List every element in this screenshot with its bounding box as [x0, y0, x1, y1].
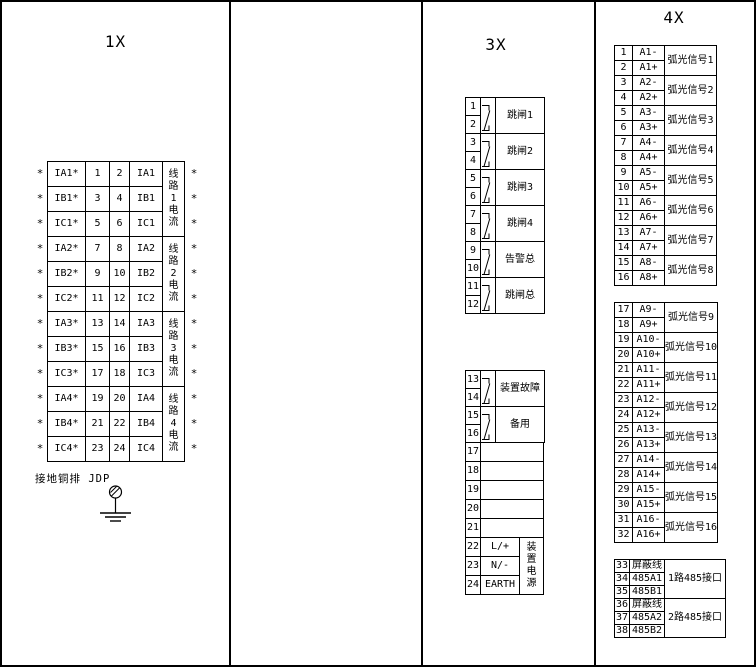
terminal-number: 19	[466, 481, 481, 500]
line-current-group-label: 线路2电流	[167, 244, 180, 304]
terminal-number: 24	[110, 437, 130, 462]
terminal-number: 23	[466, 557, 481, 576]
terminal-number: 9	[86, 262, 110, 287]
terminal-number: 3	[466, 134, 481, 152]
phase-label-left: IC1*	[48, 212, 86, 237]
wire-label: 485A1	[630, 573, 665, 586]
line-current-group-label: 线路4电流	[167, 394, 180, 454]
terminal-number: 12	[615, 211, 633, 226]
spare-cell	[481, 500, 544, 519]
earth-ground-icon	[94, 484, 138, 528]
terminal-number: 21	[86, 412, 110, 437]
power-wire-label: N/-	[481, 557, 520, 576]
wire-label: A5+	[633, 181, 665, 196]
terminal-number: 2	[466, 116, 481, 134]
terminal-number: 28	[615, 468, 633, 483]
panel-4x-title: 4X	[594, 8, 754, 27]
phase-label-left: IA1*	[48, 162, 86, 187]
polarity-star: *	[187, 286, 201, 311]
terminal-number: 20	[615, 348, 633, 363]
phase-label-right: IB2	[130, 262, 163, 287]
wire-label: A1-	[633, 46, 665, 61]
polarity-star: *	[187, 386, 201, 411]
power-wire-label: EARTH	[481, 576, 520, 595]
wire-label: A10+	[633, 348, 665, 363]
polarity-star: *	[33, 261, 47, 286]
terminal-number: 2	[615, 61, 633, 76]
terminal-number: 27	[615, 453, 633, 468]
relay-contact-icon	[482, 136, 495, 169]
wire-label: 屏蔽线	[630, 599, 665, 612]
polarity-star: *	[33, 436, 47, 461]
terminal-number: 11	[86, 287, 110, 312]
arc-signal-label: 弧光信号4	[665, 136, 717, 166]
line-current-group-cell: 线路2电流	[163, 237, 185, 312]
wire-label: A3+	[633, 121, 665, 136]
relay-contact-cell	[481, 242, 496, 278]
arc-signal-label: 弧光信号3	[665, 106, 717, 136]
terminal-number: 25	[615, 423, 633, 438]
phase-label-right: IB1	[130, 187, 163, 212]
wire-label: A13-	[633, 423, 665, 438]
terminal-number: 15	[466, 407, 481, 425]
phase-label-right: IB4	[130, 412, 163, 437]
terminal-number: 24	[466, 576, 481, 595]
polarity-star: *	[33, 186, 47, 211]
rs485-port-label: 2路485接口	[665, 599, 726, 638]
line-current-group-label: 线路3电流	[167, 319, 180, 379]
wire-label: A7+	[633, 241, 665, 256]
arc-signal-table-2: 17A9-弧光信号918A9+19A10-弧光信号1020A10+21A11-弧…	[614, 302, 718, 543]
terminal-number: 4	[615, 91, 633, 106]
terminal-number: 6	[466, 188, 481, 206]
wire-label: A10-	[633, 333, 665, 348]
terminal-number: 38	[615, 625, 630, 638]
terminal-number: 6	[110, 212, 130, 237]
terminal-number: 4	[110, 187, 130, 212]
column-divider	[421, 2, 423, 665]
terminal-number: 22	[466, 538, 481, 557]
terminal-number: 8	[615, 151, 633, 166]
relay-output-label: 跳闸4	[496, 206, 545, 242]
wire-label: 485A2	[630, 612, 665, 625]
terminal-number: 21	[466, 519, 481, 538]
arc-signal-label: 弧光信号8	[665, 256, 717, 286]
terminal-number: 20	[110, 387, 130, 412]
phase-label-left: IB1*	[48, 187, 86, 212]
phase-label-left: IC4*	[48, 437, 86, 462]
terminal-number: 13	[615, 226, 633, 241]
wire-label: A9-	[633, 303, 665, 318]
terminal-number: 18	[615, 318, 633, 333]
wire-label: A13+	[633, 438, 665, 453]
arc-signal-label: 弧光信号5	[665, 166, 717, 196]
wire-label: A1+	[633, 61, 665, 76]
terminal-number: 15	[86, 337, 110, 362]
terminal-number: 7	[466, 206, 481, 224]
polarity-star: *	[33, 311, 47, 336]
phase-label-left: IA4*	[48, 387, 86, 412]
phase-label-left: IB3*	[48, 337, 86, 362]
fault-relay-table: 13装置故障1415备用16	[465, 370, 545, 443]
terminal-number: 20	[466, 500, 481, 519]
terminal-number: 32	[615, 528, 633, 543]
relay-contact-icon	[482, 172, 495, 205]
polarity-star: *	[187, 411, 201, 436]
polarity-star: *	[187, 211, 201, 236]
wire-label: A8-	[633, 256, 665, 271]
wire-label: A2+	[633, 91, 665, 106]
terminal-number: 1	[86, 162, 110, 187]
polarity-star: *	[33, 161, 47, 186]
terminal-number: 8	[110, 237, 130, 262]
phase-label-left: IB2*	[48, 262, 86, 287]
terminal-number: 18	[466, 462, 481, 481]
phase-label-right: IA2	[130, 237, 163, 262]
arc-signal-label: 弧光信号1	[665, 46, 717, 76]
polarity-star: *	[187, 436, 201, 461]
relay-contact-icon	[482, 100, 495, 133]
line-current-group-cell: 线路1电流	[163, 162, 185, 237]
terminal-number: 17	[86, 362, 110, 387]
terminal-number: 15	[615, 256, 633, 271]
panel-3x-title: 3X	[431, 35, 561, 54]
polarity-star: *	[187, 186, 201, 211]
wire-label: A14+	[633, 468, 665, 483]
phase-label-left: IC2*	[48, 287, 86, 312]
terminal-number: 6	[615, 121, 633, 136]
relay-output-label: 跳闸3	[496, 170, 545, 206]
terminal-number: 22	[110, 412, 130, 437]
terminal-number: 5	[86, 212, 110, 237]
column-divider	[594, 2, 596, 665]
spare-terminal-table: 1718192021	[465, 442, 544, 538]
power-group-label: 装置电源	[525, 542, 538, 590]
phase-label-right: IC1	[130, 212, 163, 237]
terminal-number: 12	[466, 296, 481, 314]
terminal-number: 35	[615, 586, 630, 599]
arc-signal-label: 弧光信号15	[665, 483, 718, 513]
terminal-number: 4	[466, 152, 481, 170]
terminal-number: 8	[466, 224, 481, 242]
phase-label-right: IA1	[130, 162, 163, 187]
polarity-star: *	[33, 286, 47, 311]
relay-contact-cell	[481, 278, 496, 314]
relay-output-label: 装置故障	[496, 371, 545, 407]
terminal-number: 36	[615, 599, 630, 612]
relay-contact-cell	[481, 134, 496, 170]
terminal-wiring-diagram: 1X 3X 4X ************ IA1*12IA1线路1电流IB1*…	[0, 0, 756, 667]
terminal-number: 7	[86, 237, 110, 262]
terminal-number: 18	[110, 362, 130, 387]
relay-output-label: 跳闸总	[496, 278, 545, 314]
wire-label: A11+	[633, 378, 665, 393]
panel-1x-title: 1X	[2, 32, 229, 51]
relay-contact-cell	[481, 206, 496, 242]
phase-label-left: IC3*	[48, 362, 86, 387]
terminal-number: 30	[615, 498, 633, 513]
terminal-number: 1	[466, 98, 481, 116]
terminal-number: 19	[86, 387, 110, 412]
phase-label-right: IA3	[130, 312, 163, 337]
terminal-number: 14	[466, 389, 481, 407]
wire-label: A15+	[633, 498, 665, 513]
terminal-number: 21	[615, 363, 633, 378]
terminal-number: 24	[615, 408, 633, 423]
relay-output-label: 备用	[496, 407, 545, 443]
terminal-number: 10	[615, 181, 633, 196]
terminal-number: 11	[466, 278, 481, 296]
polarity-star: *	[33, 386, 47, 411]
terminal-number: 17	[615, 303, 633, 318]
polarity-star: *	[33, 411, 47, 436]
spare-cell	[481, 481, 544, 500]
terminal-number: 37	[615, 612, 630, 625]
relay-contact-cell	[481, 407, 496, 443]
arc-signal-label: 弧光信号16	[665, 513, 718, 543]
wire-label: A16+	[633, 528, 665, 543]
terminal-number: 17	[466, 443, 481, 462]
phase-label-right: IB3	[130, 337, 163, 362]
terminal-number: 13	[86, 312, 110, 337]
wire-label: A4-	[633, 136, 665, 151]
terminal-number: 23	[615, 393, 633, 408]
relay-contact-cell	[481, 170, 496, 206]
terminal-number: 33	[615, 560, 630, 573]
phase-label-left: IB4*	[48, 412, 86, 437]
relay-contact-icon	[482, 244, 495, 277]
arc-signal-label: 弧光信号2	[665, 76, 717, 106]
polarity-star: *	[187, 261, 201, 286]
wire-label: A4+	[633, 151, 665, 166]
wire-label: A5-	[633, 166, 665, 181]
arc-signal-label: 弧光信号7	[665, 226, 717, 256]
column-divider	[229, 2, 231, 665]
terminal-number: 26	[615, 438, 633, 453]
terminal-number: 11	[615, 196, 633, 211]
arc-signal-label: 弧光信号10	[665, 333, 718, 363]
arc-signal-label: 弧光信号12	[665, 393, 718, 423]
polarity-star: *	[187, 336, 201, 361]
terminal-number: 14	[110, 312, 130, 337]
phase-label-left: IA3*	[48, 312, 86, 337]
arc-signal-label: 弧光信号13	[665, 423, 718, 453]
relay-output-label: 跳闸2	[496, 134, 545, 170]
phase-label-right: IC2	[130, 287, 163, 312]
phase-label-left: IA2*	[48, 237, 86, 262]
polarity-star: *	[33, 361, 47, 386]
star-column-left: ************	[33, 161, 47, 461]
terminal-number: 9	[466, 242, 481, 260]
polarity-star: *	[187, 311, 201, 336]
polarity-star: *	[187, 361, 201, 386]
terminal-number: 14	[615, 241, 633, 256]
arc-signal-label: 弧光信号9	[665, 303, 718, 333]
wire-label: A3-	[633, 106, 665, 121]
arc-signal-label: 弧光信号6	[665, 196, 717, 226]
terminal-number: 34	[615, 573, 630, 586]
polarity-star: *	[33, 236, 47, 261]
wire-label: 屏蔽线	[630, 560, 665, 573]
relay-contact-icon	[482, 409, 495, 442]
power-wire-label: L/+	[481, 538, 520, 557]
terminal-number: 13	[466, 371, 481, 389]
wire-label: A8+	[633, 271, 665, 286]
phase-label-right: IA4	[130, 387, 163, 412]
terminal-number: 16	[110, 337, 130, 362]
rs485-port-table: 33屏蔽线1路485接口34485A135485B136屏蔽线2路485接口37…	[614, 559, 726, 638]
relay-output-label: 告警总	[496, 242, 545, 278]
power-terminal-table: 22L/+装置电源23N/-24EARTH	[465, 537, 544, 595]
wire-label: A2-	[633, 76, 665, 91]
relay-contact-icon	[482, 373, 495, 406]
phase-label-right: IC4	[130, 437, 163, 462]
wire-label: A7-	[633, 226, 665, 241]
line-current-group-cell: 线路3电流	[163, 312, 185, 387]
terminal-number: 23	[86, 437, 110, 462]
wire-label: A9+	[633, 318, 665, 333]
arc-signal-table-1: 1A1-弧光信号12A1+3A2-弧光信号24A2+5A3-弧光信号36A3+7…	[614, 45, 717, 286]
arc-signal-label: 弧光信号11	[665, 363, 718, 393]
line-current-group-label: 线路1电流	[167, 169, 180, 229]
wire-label: A11-	[633, 363, 665, 378]
terminal-number: 2	[110, 162, 130, 187]
terminal-number: 22	[615, 378, 633, 393]
wire-label: A14-	[633, 453, 665, 468]
terminal-number: 5	[466, 170, 481, 188]
terminal-number: 9	[615, 166, 633, 181]
phase-label-right: IC3	[130, 362, 163, 387]
polarity-star: *	[187, 236, 201, 261]
wire-label: A15-	[633, 483, 665, 498]
wire-label: 485B2	[630, 625, 665, 638]
terminal-number: 7	[615, 136, 633, 151]
line-current-group-cell: 线路4电流	[163, 387, 185, 462]
terminal-number: 5	[615, 106, 633, 121]
terminal-number: 1	[615, 46, 633, 61]
terminal-number: 3	[615, 76, 633, 91]
rs485-port-label: 1路485接口	[665, 560, 726, 599]
polarity-star: *	[187, 161, 201, 186]
relay-contact-cell	[481, 371, 496, 407]
wire-label: A12-	[633, 393, 665, 408]
arc-signal-label: 弧光信号14	[665, 453, 718, 483]
terminal-number: 10	[110, 262, 130, 287]
terminal-number: 10	[466, 260, 481, 278]
spare-cell	[481, 443, 544, 462]
terminal-number: 19	[615, 333, 633, 348]
terminal-number: 3	[86, 187, 110, 212]
power-group-cell: 装置电源	[520, 538, 544, 595]
wire-label: A12+	[633, 408, 665, 423]
relay-output-table: 1跳闸123跳闸245跳闸367跳闸489告警总1011跳闸总12	[465, 97, 545, 314]
polarity-star: *	[33, 211, 47, 236]
relay-contact-cell	[481, 98, 496, 134]
star-column-right: ************	[187, 161, 201, 461]
wire-label: A6+	[633, 211, 665, 226]
terminal-number: 16	[615, 271, 633, 286]
relay-output-label: 跳闸1	[496, 98, 545, 134]
terminal-number: 29	[615, 483, 633, 498]
terminal-number: 31	[615, 513, 633, 528]
wire-label: A16-	[633, 513, 665, 528]
polarity-star: *	[33, 336, 47, 361]
relay-contact-icon	[482, 280, 495, 313]
wire-label: 485B1	[630, 586, 665, 599]
spare-cell	[481, 519, 544, 538]
relay-contact-icon	[482, 208, 495, 241]
wire-label: A6-	[633, 196, 665, 211]
terminal-number: 16	[466, 425, 481, 443]
terminal-number: 12	[110, 287, 130, 312]
line-current-terminal-table: IA1*12IA1线路1电流IB1*34IB1IC1*56IC1IA2*78IA…	[47, 161, 185, 462]
spare-cell	[481, 462, 544, 481]
